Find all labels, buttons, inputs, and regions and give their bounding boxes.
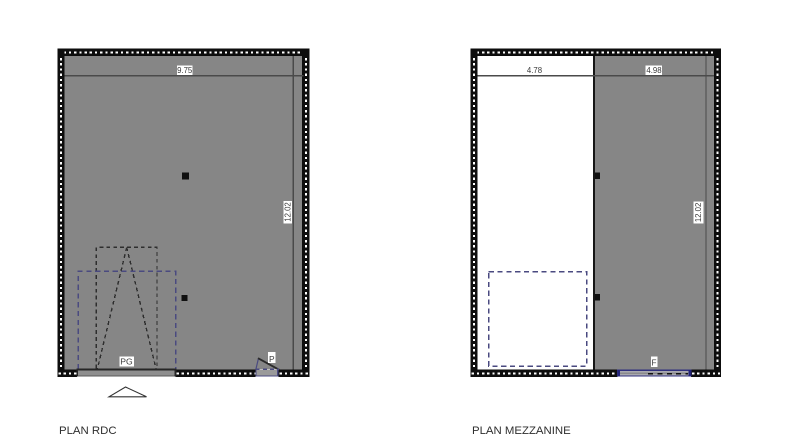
svg-text:PLAN MEZZANINE: PLAN MEZZANINE [472,425,571,437]
svg-text:PLAN RDC: PLAN RDC [59,425,117,437]
svg-text:4.78: 4.78 [527,66,542,75]
svg-text:PG: PG [120,357,133,367]
svg-text:9.75: 9.75 [177,66,193,75]
svg-text:P: P [269,354,275,364]
svg-text:F: F [651,359,656,368]
svg-text:12.02: 12.02 [694,203,703,223]
svg-text:4.98: 4.98 [646,66,661,75]
svg-text:12.02: 12.02 [283,202,292,222]
